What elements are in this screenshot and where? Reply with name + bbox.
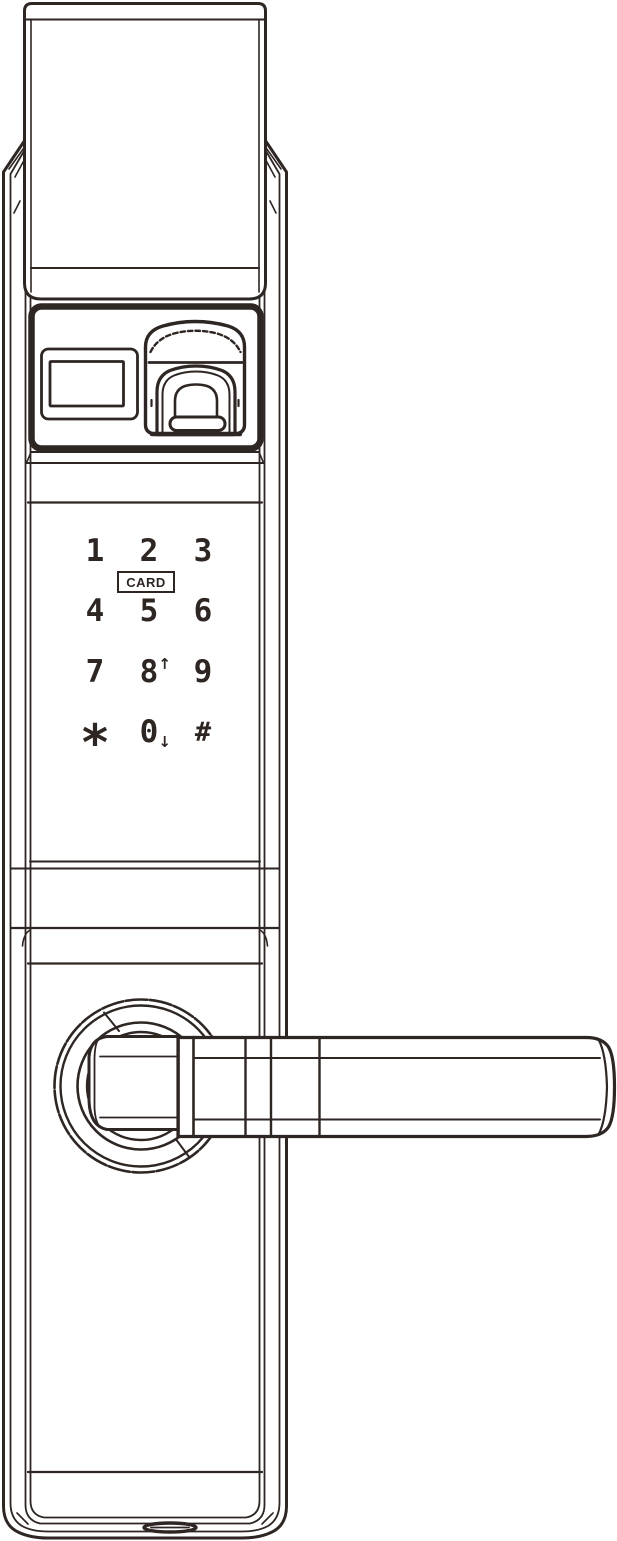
plate-outline [25, 4, 266, 300]
lever-hub [89, 1037, 178, 1130]
keypad-key-hash[interactable]: # [176, 703, 230, 764]
keypad-key-4[interactable]: 4 [68, 582, 122, 643]
key-label-2: 2 [140, 536, 159, 567]
keypad-key-1[interactable]: 1 [68, 521, 122, 582]
key-label-6: 6 [194, 596, 213, 627]
scanner-bottom-pad [170, 417, 225, 431]
key-label-1: 1 [86, 536, 105, 567]
sensor-panel [32, 307, 261, 449]
smart-door-lock-illustration: 1 2 3 4 5 6 7 8 ↑ 9 * 0 ↓ [0, 0, 617, 1541]
key-label-3: 3 [194, 536, 213, 567]
key-label-0: 0 [140, 717, 159, 748]
key-label-8: 8 [140, 657, 159, 688]
bottom-port [144, 1523, 196, 1532]
keypad-key-7[interactable]: 7 [68, 642, 122, 703]
card-reader-label[interactable]: CARD [117, 571, 175, 593]
key-label-4: 4 [86, 596, 105, 627]
key-label-hash: # [195, 719, 211, 746]
key-label-5: 5 [140, 596, 159, 627]
keypad-key-8[interactable]: 8 ↑ [122, 642, 176, 703]
key-label-9: 9 [194, 657, 213, 688]
arrow-up-icon: ↑ [158, 657, 171, 672]
card-label-text: CARD [126, 575, 166, 590]
key-label-7: 7 [86, 657, 105, 688]
keypad-key-6[interactable]: 6 [176, 582, 230, 643]
arrow-down-icon: ↓ [158, 735, 171, 750]
keypad-key-0[interactable]: 0 ↓ [122, 703, 176, 764]
keypad: 1 2 3 4 5 6 7 8 ↑ 9 * 0 ↓ [68, 521, 230, 763]
keypad-key-3[interactable]: 3 [176, 521, 230, 582]
handle-lever[interactable] [89, 1037, 615, 1137]
keypad-key-star[interactable]: * [68, 703, 122, 764]
lever-bar [178, 1038, 615, 1137]
top-cover-plate [25, 4, 266, 300]
keypad-key-9[interactable]: 9 [176, 642, 230, 703]
